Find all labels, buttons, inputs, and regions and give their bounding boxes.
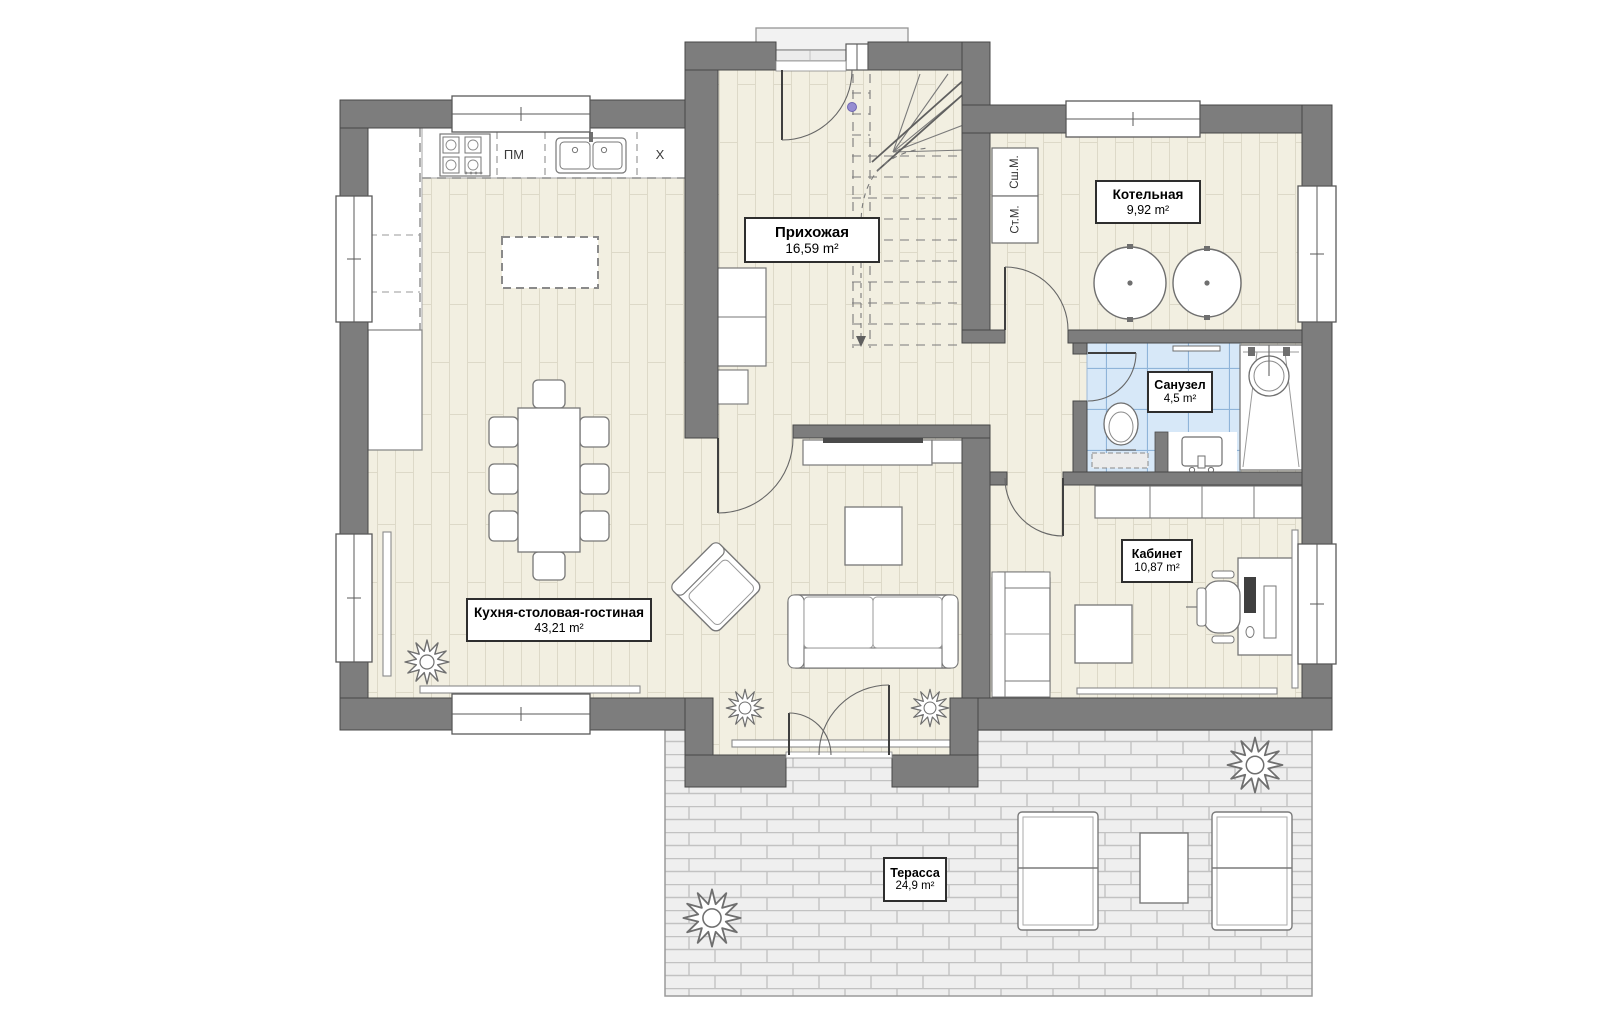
room-area: 16,59 m² — [785, 241, 838, 257]
floor-plan-svg — [0, 0, 1600, 1024]
room-label-bathroom: Санузел 4,5 m² — [1147, 371, 1213, 413]
office-sofa — [992, 572, 1050, 697]
room-area: 4,5 m² — [1164, 393, 1197, 406]
entrance-threshold — [776, 61, 846, 71]
door-pin-dot — [848, 103, 857, 112]
window-left-lower — [336, 534, 372, 662]
room-name: Кухня-столовая-гостиная — [474, 605, 644, 621]
room-area: 24,9 m² — [896, 880, 935, 893]
window-kitchen-top — [452, 96, 590, 132]
kitchen-island — [502, 237, 598, 288]
window-left-upper — [336, 196, 372, 322]
monitor-icon — [1244, 577, 1256, 613]
towel-rail — [1173, 346, 1220, 351]
room-area: 9,92 m² — [1127, 203, 1169, 217]
room-name: Санузел — [1154, 378, 1205, 392]
window-living-bottom — [452, 694, 590, 734]
room-name: Кабинет — [1132, 547, 1183, 561]
room-area: 43,21 m² — [534, 621, 583, 635]
kitchen-counter-left — [368, 128, 422, 450]
window-boiler-top — [1066, 101, 1200, 137]
sun-lounger-right — [1212, 812, 1292, 930]
office-desk — [1238, 558, 1298, 655]
room-label-office: Кабинет 10,87 m² — [1121, 539, 1193, 583]
window-office-right — [1298, 544, 1336, 664]
room-label-boiler: Котельная 9,92 m² — [1095, 180, 1201, 224]
room-name: Котельная — [1113, 187, 1184, 203]
room-name: Прихожая — [775, 224, 849, 241]
coffee-table — [845, 507, 902, 565]
kitchen-sink-icon — [556, 132, 626, 173]
room-label-living: Кухня-столовая-гостиная 43,21 m² — [466, 598, 652, 642]
terrace-door-threshold — [786, 752, 892, 758]
office-side-table — [1075, 605, 1132, 663]
dining-table — [518, 408, 580, 552]
room-label-terrace: Терасса 24,9 m² — [883, 857, 947, 902]
room-area: 10,87 m² — [1134, 562, 1179, 575]
room-label-hallway: Прихожая 16,59 m² — [744, 217, 880, 263]
entrance-sidelight — [846, 44, 868, 70]
office-closet — [1095, 486, 1302, 518]
sun-lounger-left — [1018, 812, 1098, 930]
shower-icon — [1240, 345, 1302, 470]
dryer-label: Сш.М. — [991, 149, 1039, 195]
terrace-table — [1140, 833, 1188, 903]
fridge-label: X — [650, 147, 670, 167]
stove-icon — [440, 134, 490, 176]
room-name: Терасса — [890, 866, 940, 880]
washer-label: Ст.М. — [992, 197, 1039, 243]
sofa — [788, 595, 958, 668]
floor-plan-page: Прихожая 16,59 m² Котельная 9,92 m² Сану… — [0, 0, 1600, 1024]
dishwasher-label: ПМ — [494, 147, 534, 167]
tv-stand — [803, 436, 963, 465]
window-boiler-right — [1298, 186, 1336, 322]
